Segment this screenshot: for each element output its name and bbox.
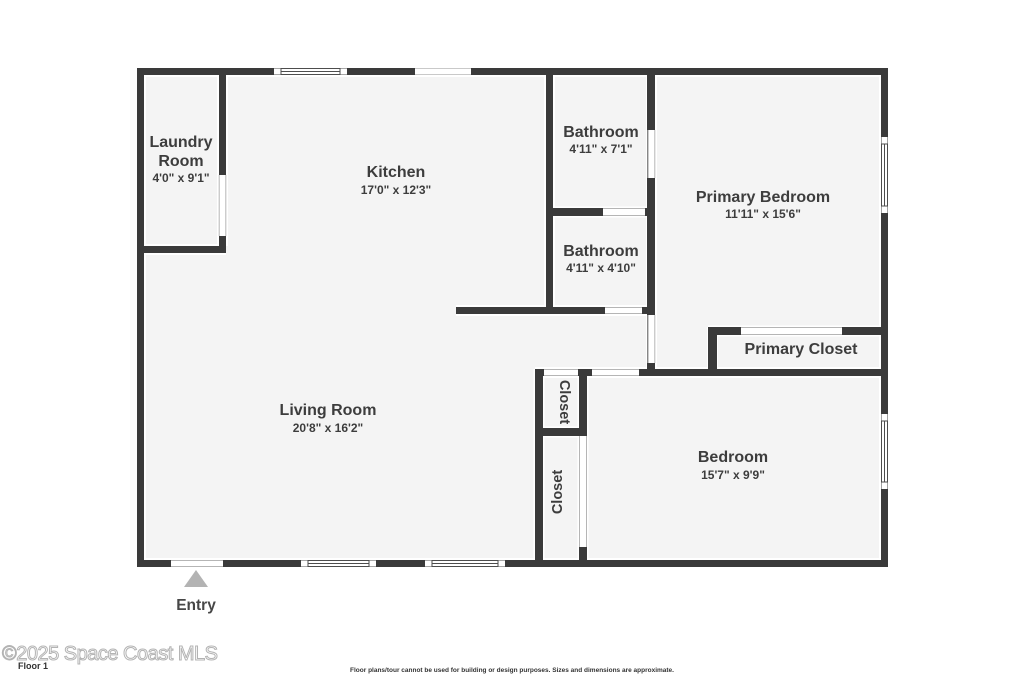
svg-text:11'11" x 15'6": 11'11" x 15'6" bbox=[725, 207, 801, 221]
svg-text:Bathroom: Bathroom bbox=[563, 124, 639, 141]
svg-text:Closet: Closet bbox=[550, 470, 566, 514]
svg-text:Kitchen: Kitchen bbox=[367, 164, 426, 181]
svg-text:4'0" x 9'1": 4'0" x 9'1" bbox=[152, 171, 209, 185]
svg-text:Living Room: Living Room bbox=[280, 402, 377, 419]
svg-text:Primary Bedroom: Primary Bedroom bbox=[696, 189, 830, 206]
svg-text:15'7" x 9'9": 15'7" x 9'9" bbox=[701, 468, 765, 482]
svg-text:Laundry: Laundry bbox=[149, 134, 212, 151]
svg-text:Closet: Closet bbox=[556, 380, 572, 424]
svg-text:Floor plans/tour cannot be use: Floor plans/tour cannot be used for buil… bbox=[350, 667, 674, 674]
svg-text:Bedroom: Bedroom bbox=[698, 449, 768, 466]
svg-text:Primary Closet: Primary Closet bbox=[745, 341, 859, 358]
svg-text:4'11" x 4'10": 4'11" x 4'10" bbox=[566, 261, 636, 275]
svg-text:17'0" x 12'3": 17'0" x 12'3" bbox=[361, 183, 431, 197]
svg-text:Entry: Entry bbox=[176, 597, 216, 614]
svg-text:4'11" x 7'1": 4'11" x 7'1" bbox=[569, 142, 632, 156]
svg-text:Bathroom: Bathroom bbox=[563, 243, 639, 260]
svg-text:Floor 1: Floor 1 bbox=[18, 661, 48, 671]
svg-text:Room: Room bbox=[158, 153, 203, 170]
svg-text:20'8" x 16'2": 20'8" x 16'2" bbox=[293, 421, 363, 435]
